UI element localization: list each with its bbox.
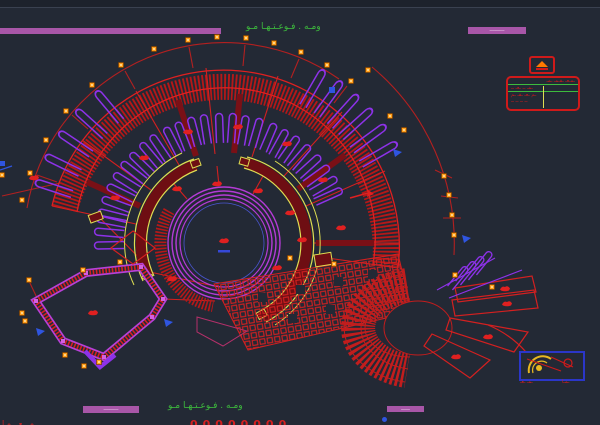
floor-plan-canvas: [0, 0, 600, 425]
plaza-gate: [314, 252, 333, 267]
header-annotation-text: ومـه . فـوعـتـهـا مـو: [246, 22, 321, 32]
title-block-vline: [543, 86, 544, 108]
footer-blue-dot: [382, 417, 387, 422]
header-left-bar: [0, 28, 221, 34]
title-block-table: ـمـعـ ـقـمـ ـمـ ـمـ ــ ـعـ ــ ـم ـعـ ـقـ…: [506, 76, 580, 111]
key-plan-caption-left: ـمـ ـعـ: [520, 379, 533, 385]
plaza-grid: [214, 252, 412, 350]
footer-clipped-numbers: 00000000: [190, 417, 352, 425]
cad-viewport: ومـه . فـوعـتـهـا مـو ــــــــــ ـمـعـ ـ…: [0, 0, 600, 425]
footer-badge-left: ــــــــــ: [83, 406, 139, 413]
north-arrow-triangle: [536, 61, 548, 67]
north-arrow-icon: [529, 56, 555, 74]
footer-clipped-text: ـمـ ـعـ ـمـا: [2, 419, 97, 425]
circular-court: [384, 301, 452, 355]
center-blue-label: [218, 250, 230, 253]
annular-steps: [344, 274, 452, 382]
footer-badge-right: ــــــ: [387, 406, 424, 412]
key-plan-caption-right: ـمـا: [562, 379, 569, 385]
key-plan-thumbnail: [519, 351, 585, 381]
footer-annotation-text: ومـه . فـوعـتـهـا مـو: [168, 401, 243, 411]
lower-left-fan: [34, 265, 165, 367]
key-plan-drawing: [521, 353, 579, 375]
header-badge: ــــــــــ: [468, 27, 526, 34]
north-arrow-base: [536, 68, 548, 70]
